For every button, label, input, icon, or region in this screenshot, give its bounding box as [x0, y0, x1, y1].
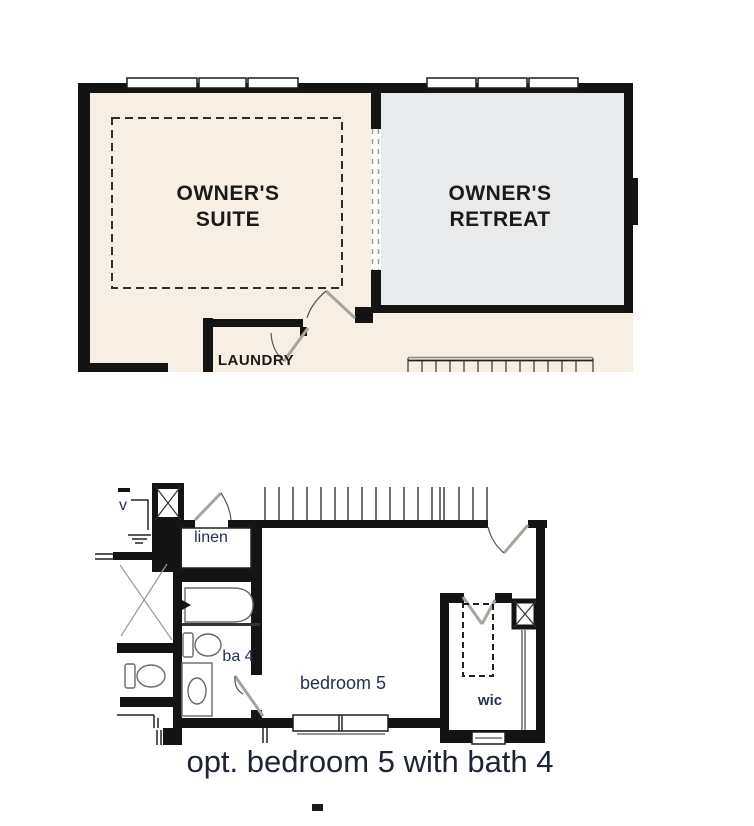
chase-box-left	[155, 486, 181, 520]
wic-double-doors	[463, 597, 495, 624]
wic-label: wic	[477, 692, 502, 709]
bedroom5-label: bedroom 5	[300, 673, 386, 693]
plan-caption: opt. bedroom 5 with bath 4	[0, 744, 740, 780]
vent-label: v	[119, 497, 127, 514]
owners-suite-label-line1: OWNER'S	[177, 182, 280, 205]
lower-walls	[113, 520, 547, 745]
bath4-label: ba 4	[222, 648, 253, 665]
bath4-door	[235, 676, 263, 716]
owners-retreat-label-line1: OWNER'S	[449, 182, 552, 205]
owners-retreat-label-line2: RETREAT	[449, 208, 550, 231]
deck-hatch-marks	[265, 487, 487, 520]
vanity-sink	[182, 663, 212, 716]
laundry-label: LAUNDRY	[218, 352, 294, 369]
chase-box-wic	[514, 601, 536, 627]
upper-floorplan: OWNER'S SUITE OWNER'S RETREAT LAUNDRY	[60, 66, 640, 372]
owners-suite-label-line2: SUITE	[196, 208, 260, 231]
lower-floorplan: v	[95, 480, 560, 750]
retreat-cased-opening	[371, 129, 381, 270]
page-dash-mark	[312, 804, 323, 811]
suite-windows	[127, 78, 298, 88]
toilet-bath4	[183, 633, 221, 657]
bedroom5-window	[293, 715, 388, 734]
retreat-windows	[427, 78, 578, 88]
linen-door	[195, 493, 231, 520]
wic-rod	[522, 630, 525, 730]
floorplan-page: OWNER'S SUITE OWNER'S RETREAT LAUNDRY v	[0, 0, 754, 826]
linen-label: linen	[194, 529, 228, 546]
toilet-hall	[125, 664, 165, 688]
bathtub	[182, 588, 260, 626]
open-below-x	[120, 564, 172, 640]
wic-window	[472, 732, 505, 744]
bedroom5-door	[488, 525, 528, 553]
